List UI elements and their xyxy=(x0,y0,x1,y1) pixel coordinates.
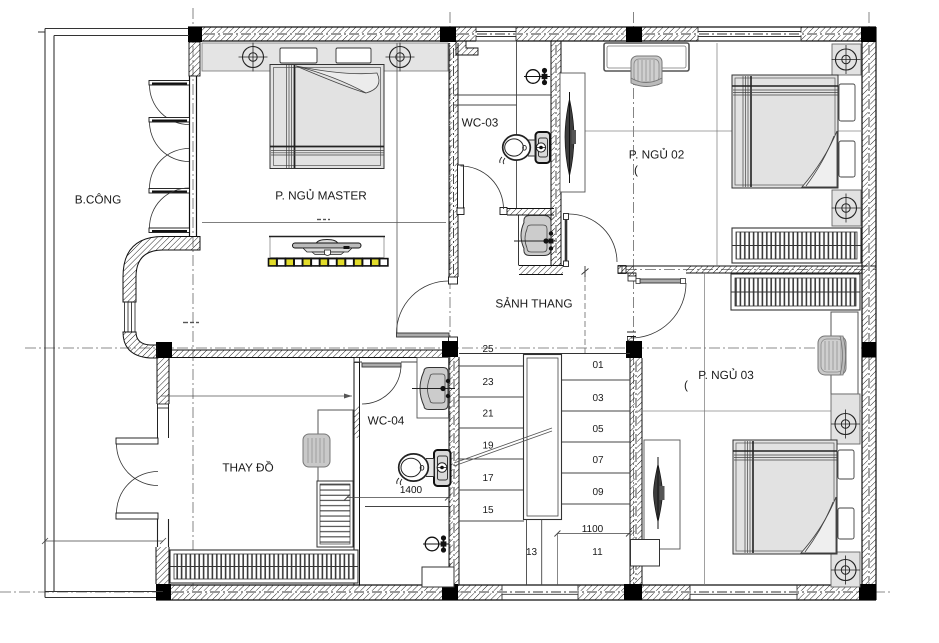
svg-text:03: 03 xyxy=(592,393,604,404)
svg-text:15: 15 xyxy=(482,505,494,516)
svg-text:09: 09 xyxy=(592,487,604,498)
svg-text:05: 05 xyxy=(592,424,604,435)
svg-text:19: 19 xyxy=(482,441,494,452)
svg-text:21: 21 xyxy=(482,409,494,420)
svg-text:P. NGỦ 02: P. NGỦ 02 xyxy=(629,148,685,162)
svg-text:1400: 1400 xyxy=(400,485,423,496)
svg-text:13: 13 xyxy=(526,547,538,558)
svg-text:07: 07 xyxy=(592,455,604,466)
svg-text:B.CÔNG: B.CÔNG xyxy=(75,193,122,207)
svg-text:THAY ĐỒ: THAY ĐỒ xyxy=(222,461,273,475)
svg-text:WC-04: WC-04 xyxy=(368,414,405,428)
svg-text:P. NGỦ 03: P. NGỦ 03 xyxy=(698,368,754,382)
svg-text:23: 23 xyxy=(482,377,494,388)
svg-text:17: 17 xyxy=(482,473,494,484)
svg-text:11: 11 xyxy=(592,547,603,558)
svg-text:(: ( xyxy=(634,163,638,177)
svg-text:01: 01 xyxy=(592,360,604,371)
svg-text:SẢNH THANG: SẢNH THANG xyxy=(495,297,572,311)
svg-text:(: ( xyxy=(684,378,688,392)
svg-text:P. NGỦ MASTER: P. NGỦ MASTER xyxy=(275,189,367,203)
svg-text:WC-03: WC-03 xyxy=(462,116,499,130)
svg-text:25: 25 xyxy=(482,344,494,355)
